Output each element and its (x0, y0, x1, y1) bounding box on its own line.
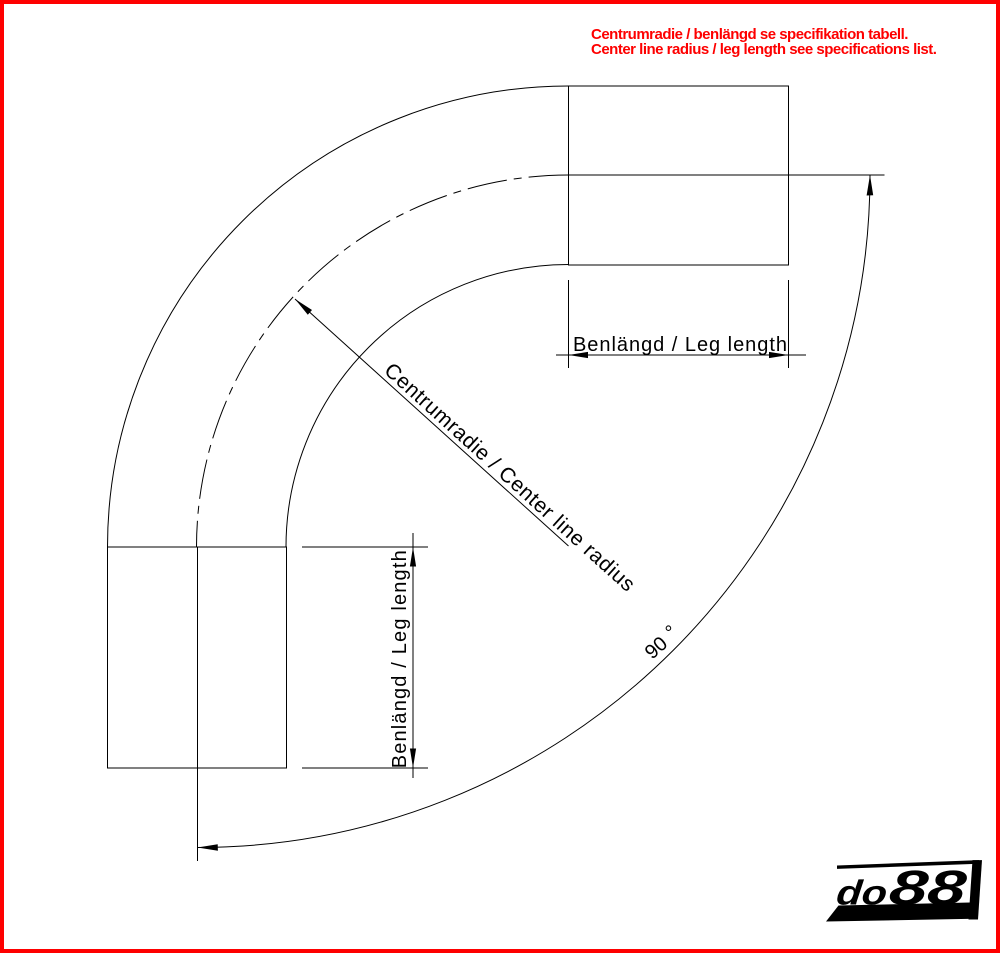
svg-text:Benlängd / Leg length: Benlängd / Leg length (389, 550, 411, 768)
svg-text:88: 88 (887, 860, 970, 915)
svg-text:Center line radius / leg lengt: Center line radius / leg length see spec… (591, 41, 937, 58)
svg-text:Benlängd / Leg length: Benlängd / Leg length (573, 334, 787, 356)
svg-text:do: do (835, 874, 890, 913)
